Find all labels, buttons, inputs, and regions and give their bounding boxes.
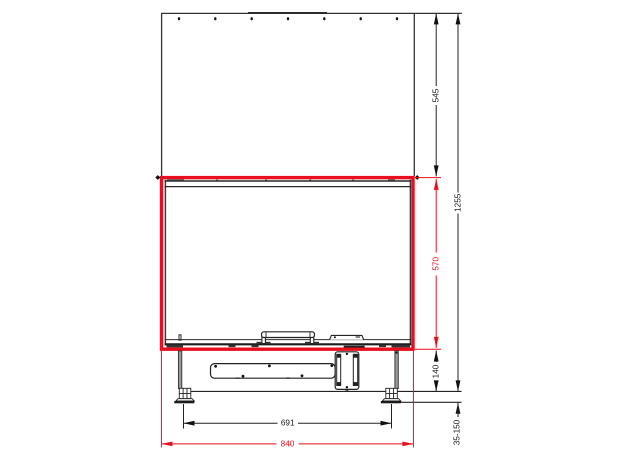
svg-text:1255: 1255 [454,193,463,212]
svg-text:35-150: 35-150 [452,419,461,445]
svg-text:840: 840 [281,439,295,448]
svg-text:570: 570 [432,257,441,271]
svg-text:545: 545 [432,88,441,102]
svg-text:140: 140 [432,364,441,378]
svg-text:691: 691 [281,419,295,428]
